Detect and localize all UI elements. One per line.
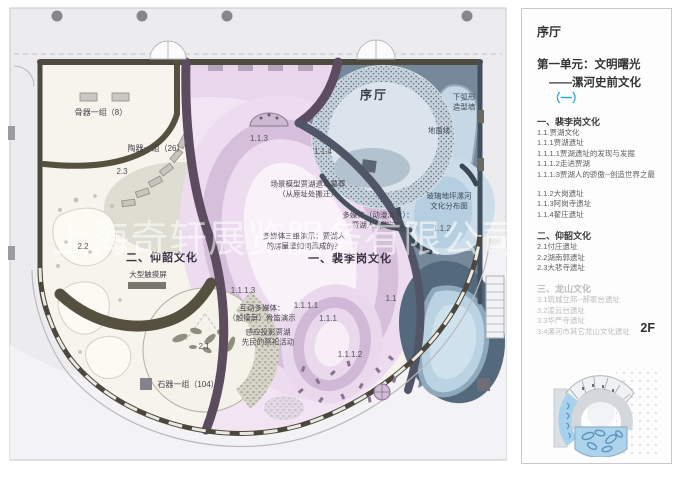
label-code-2-3: 2.3 — [116, 167, 127, 177]
label-glass-floor-line2: 文化分布图 — [427, 201, 472, 211]
label-code-1-1-4: 1.1.4 — [314, 147, 332, 157]
label-code-1-1-1: 1.1.1 — [319, 314, 337, 324]
label-multimedia-3d: 多媒体三维演示：贾湖人 的房屋是如何建成的？ — [263, 231, 346, 251]
dance-circle — [374, 384, 390, 400]
label-projection-line2: 先民的祭祀活动 — [242, 337, 295, 347]
label-ground-line: 地面线 — [428, 126, 451, 136]
label-code-1-1-1-1: 1.1.1.1 — [294, 301, 318, 311]
legend-item: 1.1.2大岗遗址 — [537, 189, 663, 199]
label-stone-group: 石器一组（104） — [157, 380, 218, 390]
legend-item: 1.1.贾湖文化 — [537, 128, 663, 138]
label-pottery-group: 陶器一组（26） — [128, 144, 185, 154]
label-interactive-line1: 互动多媒体： — [228, 303, 296, 313]
label-multimedia-anim: 多媒体（动漫演示）： 贾湖人制陶过程 — [342, 210, 413, 230]
label-code-1-1-1-3: 1.1.1.3 — [231, 286, 255, 296]
label-touchscreen: 大型触摸屏 — [129, 270, 167, 280]
label-interactive-line2: （触摸屏）骨笛演示 — [228, 313, 296, 323]
unit-title-text: ——漯河史前文化 — [549, 77, 641, 89]
label-multimedia-3d-line2: 的房屋是如何建成的？ — [263, 241, 346, 251]
label-code-1-1: 1.1 — [385, 294, 396, 304]
legend-item: 3.1筑城立邦--郝家台遗址 — [537, 295, 663, 305]
label-code-1-1-2: 1.1.2 — [433, 224, 451, 234]
section-title: 二、仰韶文化 — [537, 229, 663, 242]
label-multimedia-3d-line1: 多媒体三维演示：贾湖人 — [263, 231, 346, 241]
overview-minimap — [542, 347, 660, 457]
legend-item: 1.1.4翟庄遗址 — [537, 210, 663, 220]
legend-panel: 序厅 第一单元：文明曙光 ——漯河史前文化（一） 一、裴李岗文化 1.1.贾湖文… — [521, 8, 672, 464]
exhibition-plan-page: 序厅 骨器一组（8） 陶器一组（26） 2.3 2.2 二、仰韶文化 大型触摸屏… — [0, 0, 676, 477]
label-scene-model: 场景模型贾湖遗址墓葬 （从原址处搬迁） — [271, 179, 346, 199]
label-projection-line1: 感应投影贾湖 — [242, 327, 295, 337]
section-title: 三、龙山文化 — [537, 282, 663, 295]
section-yangshao: 二、仰韶文化 2.1付庄遗址 2.2湖南郭遗址 2.3大悲寺遗址 — [537, 229, 663, 273]
legend-hall-title: 序厅 — [537, 23, 663, 40]
label-zone-peiligang: 一、裴李岗文化 — [308, 252, 392, 266]
label-arc-wall-line2: 造型墙 — [453, 102, 476, 112]
label-scene-model-line2: （从原址处搬迁） — [271, 189, 346, 199]
label-zone-yangshao: 二、仰韶文化 — [126, 251, 198, 265]
label-arc-wall: 下弧形 造型墙 — [453, 92, 476, 112]
label-code-1-1-1-2: 1.1.1.2 — [338, 350, 362, 360]
label-multimedia-anim-line1: 多媒体（动漫演示）： — [342, 210, 413, 220]
unit-title-line1: 第一单元：文明曙光 — [537, 56, 663, 72]
legend-item: 2.2湖南郭遗址 — [537, 253, 663, 263]
label-code-2-1: 2.1 — [198, 342, 209, 352]
unit-title-line2: ——漯河史前文化（一） — [549, 74, 663, 106]
label-projection: 感应投影贾湖 先民的祭祀活动 — [242, 327, 295, 347]
label-code-2-2: 2.2 — [77, 242, 88, 252]
legend-item: 2.1付庄遗址 — [537, 242, 663, 252]
floor-plan-drawing — [0, 0, 515, 477]
label-bone-group: 骨器一组（8） — [75, 108, 127, 118]
label-interactive-multimedia: 互动多媒体： （触摸屏）骨笛演示 — [228, 303, 296, 323]
label-prologue-hall: 序厅 — [360, 88, 388, 104]
legend-item: 1.1.1.2走进贾湖 — [537, 159, 663, 169]
legend-item: 1.1.1.3贾湖人的骄傲--创造世界之最 — [537, 170, 663, 180]
label-multimedia-anim-line2: 贾湖人制陶过程 — [342, 220, 413, 230]
section-title: 一、裴李岗文化 — [537, 115, 663, 128]
label-code-1-1-3: 1.1.3 — [250, 134, 268, 144]
label-scene-model-line1: 场景模型贾湖遗址墓葬 — [271, 179, 346, 189]
label-glass-floor: 玻璃地坪漯河 文化分布图 — [427, 191, 472, 211]
legend-item: 1.1.1贾湖遗址 — [537, 138, 663, 148]
unit-title-number: （一） — [549, 93, 584, 105]
legend-item: 2.3大悲寺遗址 — [537, 263, 663, 273]
legend-item: 1.1.3阿岗寺遗址 — [537, 199, 663, 209]
label-arc-wall-line1: 下弧形 — [453, 92, 476, 102]
legend-item: 3.2凌云台遗址 — [537, 306, 663, 316]
legend-item: 1.1.1.1贾湖遗址的发现与发掘 — [537, 149, 663, 159]
floor-plan — [0, 0, 515, 477]
label-glass-floor-line1: 玻璃地坪漯河 — [427, 191, 472, 201]
floor-badge: 2F — [640, 321, 655, 335]
section-peiligang: 一、裴李岗文化 1.1.贾湖文化 1.1.1贾湖遗址 1.1.1.1贾湖遗址的发… — [537, 115, 663, 220]
